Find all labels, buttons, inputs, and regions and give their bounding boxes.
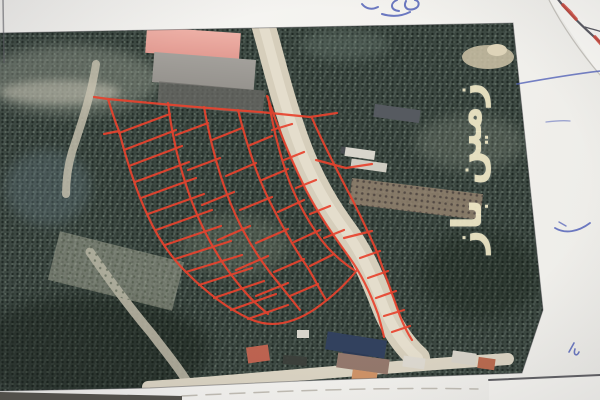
photographed-cadastral-document: زمین باز <box>0 0 600 400</box>
blue-n-mark-2 <box>574 349 579 355</box>
blue-smile-mark <box>555 223 590 231</box>
blue-dash-small <box>546 121 570 122</box>
sheet-bottom-edges <box>0 375 600 400</box>
sheet-right-edge-line <box>549 0 600 76</box>
blue-tick <box>559 222 566 226</box>
handwriting-scribble-top <box>362 0 419 16</box>
blue-curve-long <box>517 71 600 84</box>
image-edge-outline <box>0 23 543 391</box>
sheet-left-edge-line <box>3 0 4 63</box>
pen-annotations <box>0 0 600 400</box>
blue-n-mark-1 <box>569 343 574 352</box>
blue-pen-marks-right <box>517 71 600 355</box>
